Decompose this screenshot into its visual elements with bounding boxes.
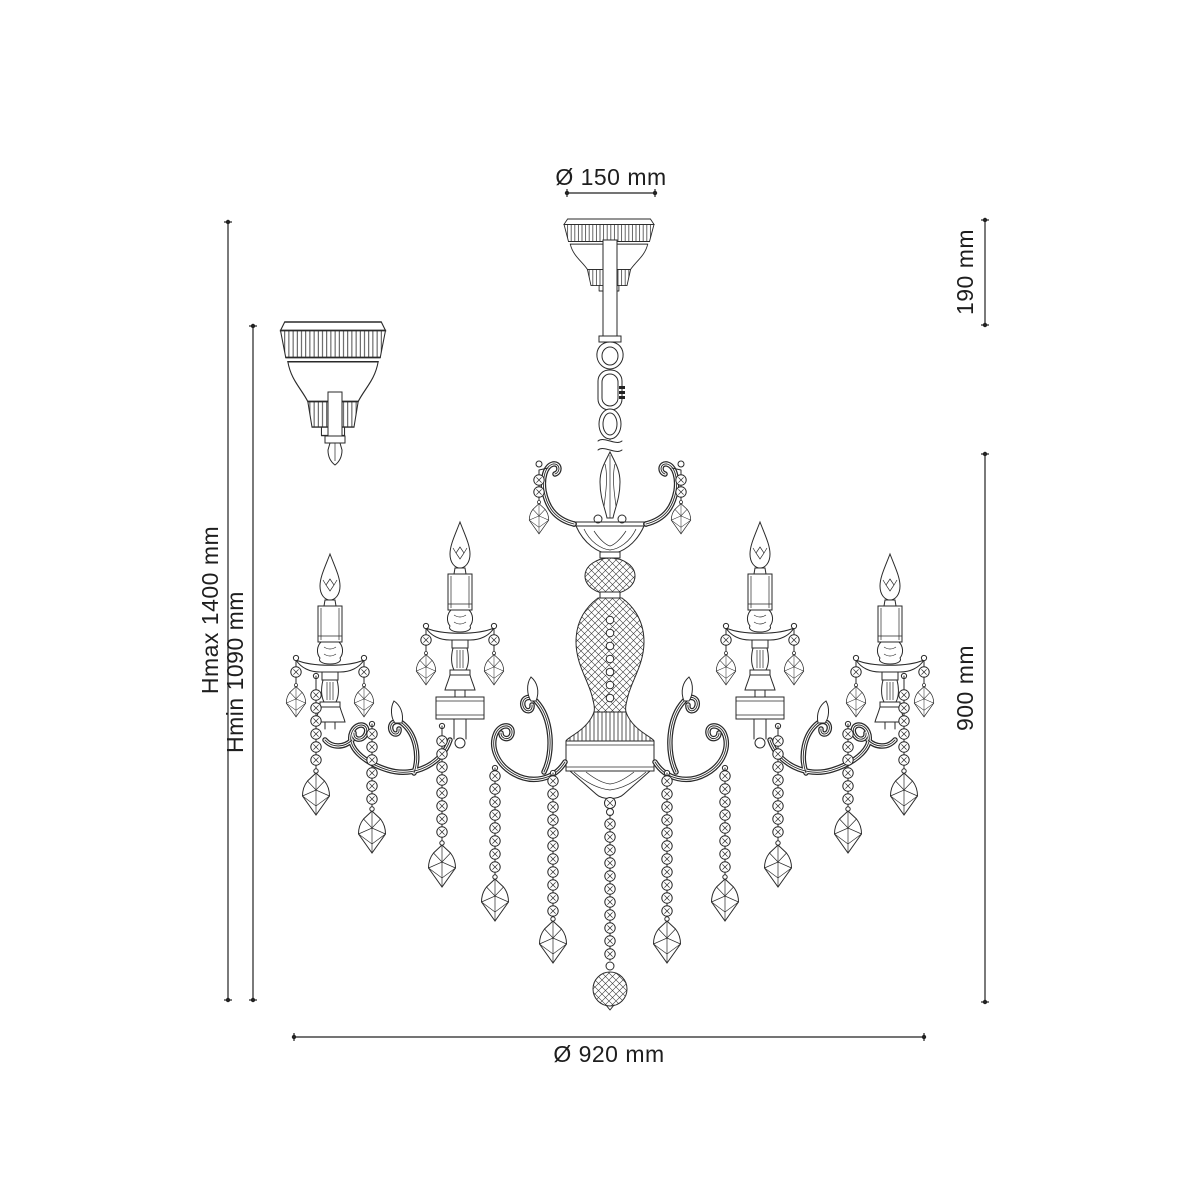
- center-knob: [585, 552, 635, 598]
- column-base-bell: [566, 712, 654, 741]
- chain-break-mark: [598, 440, 622, 452]
- leaf-bud: [682, 677, 692, 701]
- center-bead-chain: [605, 815, 615, 961]
- center-vase: [576, 598, 644, 712]
- dimension-body-height: 900 mm: [952, 452, 989, 1004]
- canopy-height-label: 190 mm: [952, 229, 978, 315]
- chandelier-side-right: [646, 461, 934, 963]
- bottom-diameter-label: Ø 920 mm: [553, 1041, 664, 1067]
- body-height-label: 900 mm: [952, 645, 978, 731]
- dimension-top-diameter: Ø 150 mm: [555, 164, 666, 197]
- center-bowl: [572, 522, 649, 554]
- height-min-label: Hmin 1090 mm: [222, 591, 248, 753]
- bead-chain-5: [654, 770, 681, 963]
- dimension-height-min: Hmin 1090 mm: [222, 324, 257, 1002]
- leaf-bud: [817, 701, 828, 723]
- hanger-rod: [603, 240, 617, 336]
- drawing-canvas: Ø 150 mm 190 mm Hmax 1400 mm Hmin 1090 m…: [0, 0, 1200, 1200]
- bottom-crystal-ball: [593, 962, 627, 1010]
- bottom-cone: [570, 771, 650, 816]
- chandelier-technical-drawing: Ø 150 mm 190 mm Hmax 1400 mm Hmin 1090 m…: [0, 0, 1200, 1200]
- bead-chain-4: [712, 765, 739, 921]
- center-drum: [566, 741, 654, 771]
- dimension-bottom-diameter: Ø 920 mm: [292, 1033, 926, 1067]
- candle-inner: [716, 522, 803, 697]
- height-max-label: Hmax 1400 mm: [197, 526, 223, 694]
- center-column: [566, 452, 654, 1010]
- suspension-chain: [597, 336, 625, 452]
- main-canopy: [564, 219, 654, 336]
- inner-arm-drum: [736, 697, 784, 719]
- chandelier-side-left: [286, 461, 574, 963]
- candle-outer: [846, 554, 933, 729]
- bead-chain-3: [765, 723, 792, 887]
- canopy-detail-drawing: [281, 322, 386, 465]
- dimension-canopy-height: 190 mm: [952, 218, 989, 327]
- top-diameter-label: Ø 150 mm: [555, 164, 666, 190]
